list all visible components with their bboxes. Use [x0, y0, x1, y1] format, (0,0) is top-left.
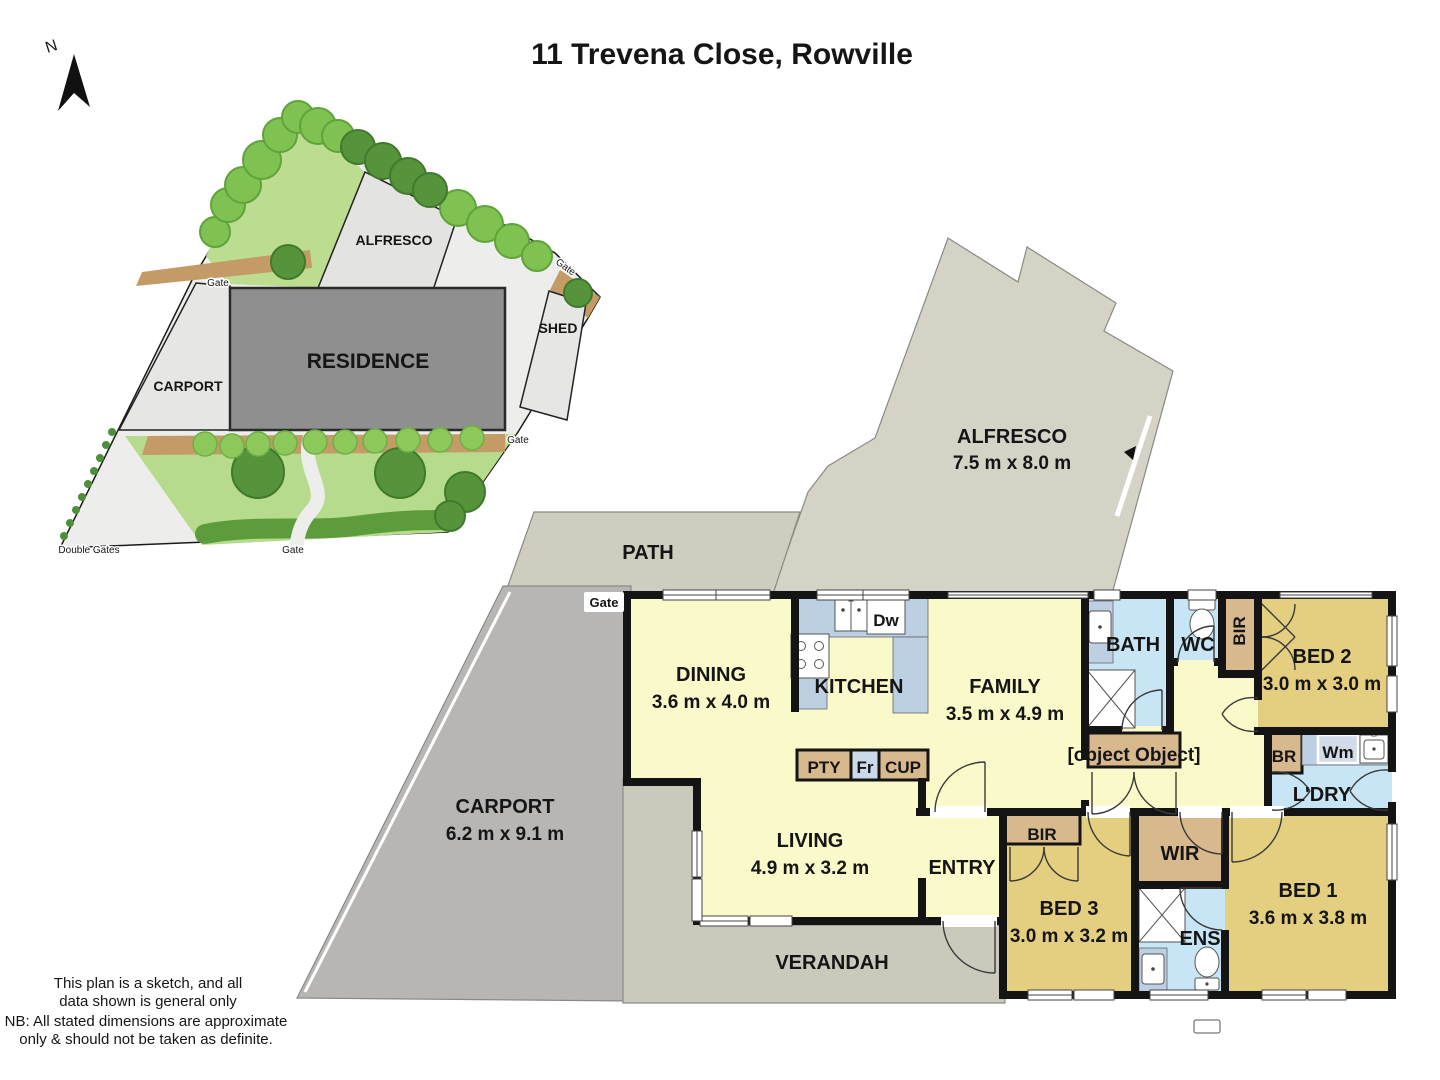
site-residence-label: RESIDENCE — [307, 350, 430, 373]
room-dining — [627, 595, 795, 782]
site-gate-right-label: Gate — [507, 435, 529, 446]
bed1-dims: 3.6 m x 3.8 m — [1249, 908, 1367, 929]
wc-label: WC — [1181, 634, 1214, 656]
site-double-gates-label: Double Gates — [58, 545, 119, 556]
bath-label: BATH — [1106, 634, 1160, 656]
kitchen-label: KITCHEN — [815, 676, 904, 698]
disclaimer-line1: This plan is a sketch, and all — [54, 975, 242, 992]
plan-canvas: ALFRESCO RESIDENCE CARPORT SHED Gate Gat… — [0, 0, 1440, 1080]
bed3-dims: 3.0 m x 3.2 m — [1010, 926, 1128, 947]
bed3-bir-label: BIR — [1027, 825, 1056, 844]
bed1-label: BED 1 — [1279, 880, 1338, 902]
alfresco-label: ALFRESCO — [957, 426, 1067, 448]
living-label: LIVING — [777, 830, 844, 852]
carport-label: CARPORT — [456, 796, 555, 818]
disclaimer-line2: data shown is general only — [59, 993, 237, 1010]
wm-label: Wm — [1322, 743, 1353, 762]
path-label: PATH — [622, 542, 673, 564]
cup-label: CUP — [885, 758, 921, 777]
alfresco-dims: 7.5 m x 8.0 m — [953, 453, 1071, 474]
ldry-label: L'DRY — [1293, 784, 1352, 806]
room-bed1 — [1225, 812, 1392, 995]
site-gate-top-label: Gate — [207, 278, 229, 289]
fr-label: Fr — [857, 758, 874, 777]
floorplan-page: ALFRESCO RESIDENCE CARPORT SHED Gate Gat… — [0, 0, 1440, 1080]
linen-label: [object Object] — [1067, 745, 1200, 766]
site-carport-label: CARPORT — [153, 378, 223, 394]
disclaimer-line4: only & should not be taken as definite. — [19, 1031, 273, 1048]
bath-shower-icon — [1087, 670, 1135, 728]
dining-dims: 3.6 m x 4.0 m — [652, 692, 770, 713]
pty-label: PTY — [807, 758, 841, 777]
gate-label: Gate — [584, 592, 624, 612]
ens-vanity-icon — [1139, 948, 1167, 992]
bed2-dims: 3.0 m x 3.0 m — [1263, 674, 1381, 695]
page-title: 11 Trevena Close, Rowville — [531, 38, 913, 71]
wir-label: WIR — [1161, 843, 1200, 865]
verandah-label: VERANDAH — [775, 952, 888, 974]
dining-label: DINING — [676, 664, 746, 686]
ens-shower-icon — [1139, 882, 1185, 942]
bed2-label: BED 2 — [1293, 646, 1352, 668]
entry-label: ENTRY — [928, 857, 996, 879]
family-dims: 3.5 m x 4.9 m — [946, 704, 1064, 725]
bed2-bir-label: BIR — [1230, 616, 1249, 645]
carport-dims: 6.2 m x 9.1 m — [446, 824, 564, 845]
site-gate-bottom-label: Gate — [282, 545, 304, 556]
site-shed-label: SHED — [539, 320, 578, 336]
br-label: BR — [1272, 747, 1297, 766]
site-alfresco-label: ALFRESCO — [356, 232, 433, 248]
ens-label: ENS — [1179, 928, 1220, 950]
gate-text: Gate — [590, 595, 619, 610]
disclaimer-line3: NB: All stated dimensions are approximat… — [5, 1013, 288, 1030]
bed3-label: BED 3 — [1040, 898, 1099, 920]
room-entry — [918, 782, 1003, 921]
dw-label: Dw — [873, 611, 899, 630]
living-dims: 4.9 m x 3.2 m — [751, 858, 869, 879]
family-label: FAMILY — [969, 676, 1041, 698]
kitchen-bench-right — [893, 637, 928, 713]
